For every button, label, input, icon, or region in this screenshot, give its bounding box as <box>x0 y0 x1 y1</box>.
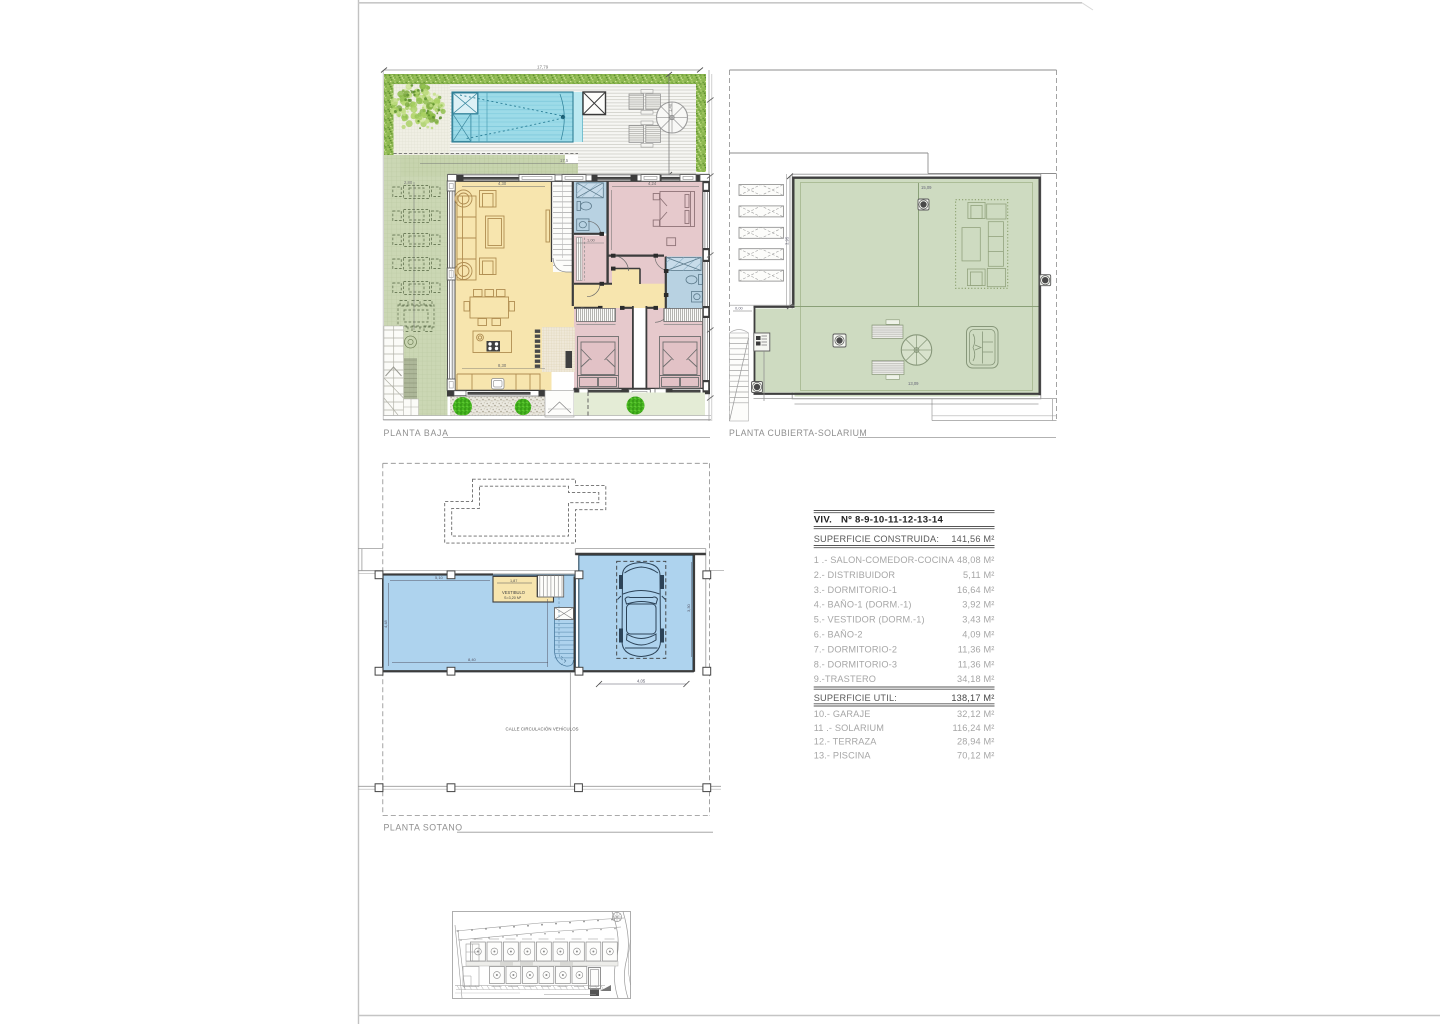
svg-text:4,48: 4,48 <box>383 619 388 628</box>
svg-text:2,80: 2,80 <box>404 180 413 185</box>
svg-text:3,30: 3,30 <box>686 603 691 612</box>
svg-text:PLANTA BAJA: PLANTA BAJA <box>384 428 449 438</box>
svg-text:SUPERFICIE CONSTRUIDA:: SUPERFICIE CONSTRUIDA: <box>814 534 939 544</box>
svg-text:1 .- SALON-COMEDOR-COCINA: 1 .- SALON-COMEDOR-COCINA <box>814 555 955 565</box>
svg-text:PLANTA SOTANO: PLANTA SOTANO <box>384 823 463 833</box>
svg-text:2.- DISTRIBUIDOR: 2.- DISTRIBUIDOR <box>814 570 896 580</box>
svg-text:CALLE CIRCULACIÓN VEHÍCULOS: CALLE CIRCULACIÓN VEHÍCULOS <box>506 727 579 732</box>
svg-text:6.- BAÑO-2: 6.- BAÑO-2 <box>814 630 863 640</box>
svg-text:15,09: 15,09 <box>921 185 932 190</box>
svg-text:138,17 M²: 138,17 M² <box>951 693 994 703</box>
svg-text:28,94 M²: 28,94 M² <box>957 737 994 747</box>
svg-text:13,09: 13,09 <box>908 381 919 386</box>
svg-text:8,40: 8,40 <box>468 657 477 662</box>
svg-text:11,36 M²: 11,36 M² <box>958 644 995 654</box>
svg-text:17,5: 17,5 <box>560 158 569 163</box>
svg-text:32,12 M²: 32,12 M² <box>957 709 994 719</box>
svg-text:3,92 M²: 3,92 M² <box>962 600 994 610</box>
svg-text:4,24: 4,24 <box>648 181 657 186</box>
svg-text:10.- GARAJE: 10.- GARAJE <box>814 709 871 719</box>
svg-text:1,87: 1,87 <box>510 579 517 583</box>
svg-text:4.- BAÑO-1 (DORM.-1): 4.- BAÑO-1 (DORM.-1) <box>814 600 912 610</box>
svg-text:12.- TERRAZA: 12.- TERRAZA <box>814 737 878 747</box>
svg-text:116,24 M²: 116,24 M² <box>952 723 994 733</box>
svg-text:4,30: 4,30 <box>498 181 507 186</box>
svg-text:5,11 M²: 5,11 M² <box>963 570 995 580</box>
svg-text:8.- DORMITORIO-3: 8.- DORMITORIO-3 <box>814 659 897 669</box>
svg-text:70,12 M²: 70,12 M² <box>957 750 994 760</box>
svg-text:11 .- SOLARIUM: 11 .- SOLARIUM <box>814 723 884 733</box>
svg-text:5,10: 5,10 <box>435 575 444 580</box>
svg-text:4,09 M²: 4,09 M² <box>962 630 994 640</box>
svg-text:141,56 M²: 141,56 M² <box>951 534 994 544</box>
svg-text:7.- DORMITORIO-2: 7.- DORMITORIO-2 <box>814 644 897 654</box>
svg-text:17,79: 17,79 <box>537 65 549 70</box>
svg-text:0,00: 0,00 <box>735 306 744 311</box>
svg-text:16,64 M²: 16,64 M² <box>957 585 994 595</box>
svg-text:3,95: 3,95 <box>785 236 790 245</box>
svg-text:VESTIBULO: VESTIBULO <box>502 590 525 595</box>
svg-text:34,18 M²: 34,18 M² <box>957 674 994 684</box>
svg-text:5.- VESTIDOR (DORM.-1): 5.- VESTIDOR (DORM.-1) <box>814 615 925 625</box>
svg-text:3.- DORMITORIO-1: 3.- DORMITORIO-1 <box>814 585 897 595</box>
svg-text:13.- PISCINA: 13.- PISCINA <box>814 750 872 760</box>
svg-text:S=3,20 M²: S=3,20 M² <box>504 596 522 600</box>
svg-text:9.-TRASTERO: 9.-TRASTERO <box>814 674 876 684</box>
svg-text:3,43 M²: 3,43 M² <box>962 615 994 625</box>
svg-text:1,40: 1,40 <box>668 103 673 112</box>
svg-text:VIV. Nº 8-9-10-11-12-13-14: VIV. Nº 8-9-10-11-12-13-14 <box>814 515 944 526</box>
svg-text:8,30: 8,30 <box>498 363 507 368</box>
svg-text:11,36 M²: 11,36 M² <box>958 659 995 669</box>
svg-text:SUPERFICIE UTIL:: SUPERFICIE UTIL: <box>814 693 897 703</box>
svg-text:4,05: 4,05 <box>637 679 646 684</box>
svg-text:48,08 M²: 48,08 M² <box>957 555 994 565</box>
svg-text:PLANTA CUBIERTA-SOLARIUM: PLANTA CUBIERTA-SOLARIUM <box>729 428 867 438</box>
